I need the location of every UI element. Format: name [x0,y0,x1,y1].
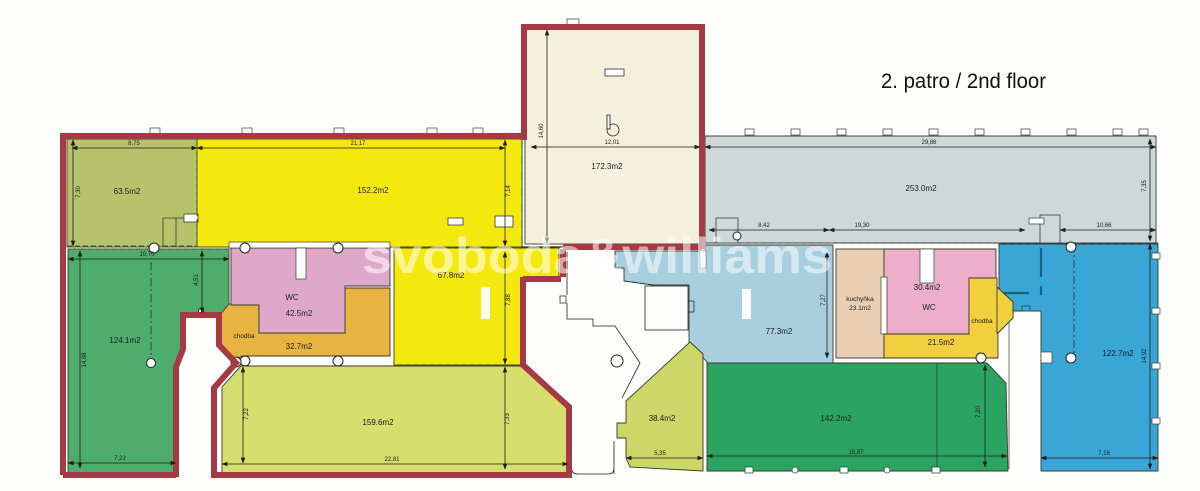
svg-text:8,75: 8,75 [128,141,140,147]
svg-text:14,98: 14,98 [82,352,88,368]
svg-text:2. patro / 2nd floor: 2. patro / 2nd floor [881,69,1046,93]
svg-text:10,70: 10,70 [139,252,155,258]
svg-text:7,22: 7,22 [244,408,250,420]
svg-text:21.5m2: 21.5m2 [928,338,955,347]
svg-text:14,92: 14,92 [1142,348,1148,364]
svg-text:7,30: 7,30 [76,186,82,198]
svg-text:142.2m2: 142.2m2 [820,414,852,423]
svg-text:7,27: 7,27 [821,294,827,306]
svg-text:23.1m2: 23.1m2 [849,305,871,312]
svg-text:22,81: 22,81 [384,457,400,463]
svg-text:7,22: 7,22 [114,456,126,462]
svg-text:7,20: 7,20 [976,406,982,418]
svg-text:7,88: 7,88 [506,294,512,306]
svg-text:10,66: 10,66 [1096,223,1112,229]
svg-text:7,35: 7,35 [1142,180,1148,192]
svg-text:chodba: chodba [971,318,993,325]
svg-text:15,87: 15,87 [848,450,864,456]
svg-text:19,30: 19,30 [854,223,870,229]
svg-text:7,14: 7,14 [506,185,512,197]
svg-text:7,16: 7,16 [1098,451,1110,457]
svg-text:38.4m2: 38.4m2 [649,414,676,423]
svg-text:159.6m2: 159.6m2 [362,418,394,427]
svg-text:124.1m2: 124.1m2 [109,336,141,345]
svg-text:253.0m2: 253.0m2 [905,184,937,193]
svg-text:5,35: 5,35 [654,451,666,457]
svg-text:svoboda&williams: svoboda&williams [362,228,832,284]
svg-text:42.5m2: 42.5m2 [286,309,313,318]
svg-text:30.4m2: 30.4m2 [914,283,941,292]
svg-text:32.7m2: 32.7m2 [286,342,313,351]
svg-text:WC: WC [922,303,936,312]
svg-text:29,86: 29,86 [921,140,937,146]
svg-text:21,17: 21,17 [350,141,366,147]
svg-text:172.3m2: 172.3m2 [591,162,623,171]
svg-text:chodba: chodba [233,333,255,340]
svg-text:122.7m2: 122.7m2 [1102,349,1134,358]
svg-text:14,60: 14,60 [539,123,545,139]
svg-text:7,33: 7,33 [505,413,511,425]
svg-text:77.3m2: 77.3m2 [766,327,793,336]
svg-text:4,51: 4,51 [194,274,200,286]
svg-text:63.5m2: 63.5m2 [114,187,141,196]
svg-text:12,01: 12,01 [604,140,620,146]
svg-text:152.2m2: 152.2m2 [357,186,389,195]
svg-text:WC: WC [285,293,299,302]
svg-text:kuchyňka: kuchyňka [846,296,874,303]
